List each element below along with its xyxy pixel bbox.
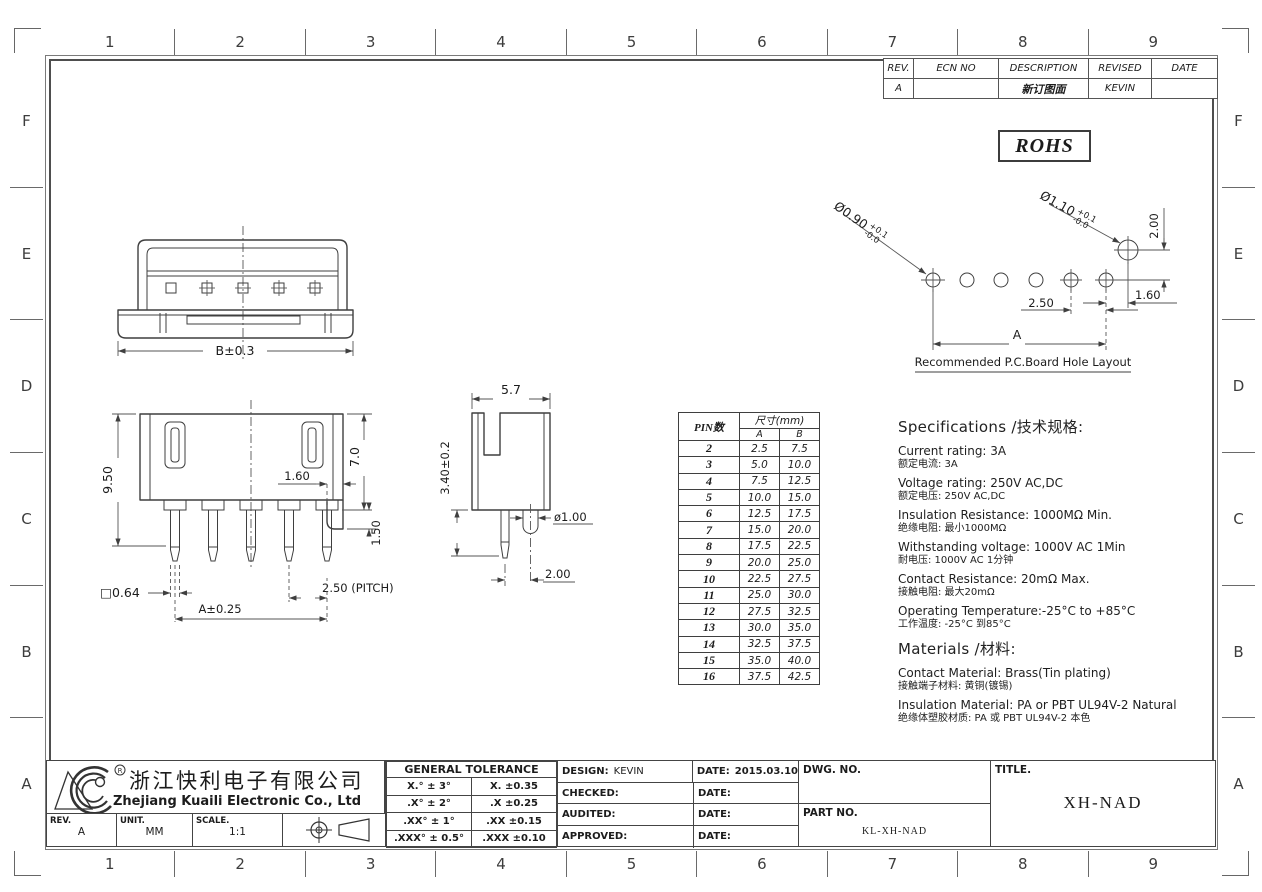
signoff-row: DESIGN: KEVIN DATE: 2015.03.10 [558, 761, 798, 783]
pin-table-row: 10 22.5 27.5 [679, 571, 820, 587]
revision-row: A 新订图面 KEVIN [884, 79, 1218, 99]
scale-cell: SCALE. 1:1 [192, 813, 283, 847]
tolerance-row: X.° ± 3° X. ±0.35 [387, 778, 557, 796]
revision-header-cell: ECN NO [914, 59, 999, 79]
dim-b-cell: 30.0 [780, 587, 820, 603]
company-box: R 浙江快利电子有限公司 Zhejiang Kuaili Electronic … [46, 760, 385, 814]
tolerance-linear-cell: X. ±0.35 [472, 778, 557, 796]
pin-table-row: 12 27.5 32.5 [679, 603, 820, 619]
dim-b-cell: 25.0 [780, 555, 820, 571]
top-view-drawing: B±0.3 [95, 222, 390, 362]
top-view-pins [166, 280, 323, 296]
tolerance-linear-cell: .XXX ±0.10 [472, 830, 557, 848]
grid-column-label: 7 [828, 851, 958, 877]
grid-column-label: 3 [306, 29, 436, 55]
rev-label: REV. [50, 816, 71, 826]
pin-count-cell: 16 [679, 669, 740, 685]
pin-count-cell: 6 [679, 506, 740, 522]
spec-text-en: Contact Resistance: 20mΩ Max. [898, 572, 1220, 587]
grid-column-label: 4 [436, 851, 566, 877]
tolerance-box: GENERAL TOLERANCE X.° ± 3° X. ±0.35 .X° … [385, 760, 558, 847]
grid-row-label: F [1222, 55, 1255, 188]
unit-cell: UNIT. MM [116, 813, 193, 847]
pin-table-header-pins: PIN数 [679, 413, 740, 441]
unit-label: UNIT. [120, 816, 145, 826]
grid-column-label: 4 [436, 29, 566, 55]
pin-count-cell: 13 [679, 620, 740, 636]
signoff-label: DESIGN: [562, 766, 609, 777]
grid-column-label: 9 [1089, 29, 1218, 55]
dim-b-cell: 15.0 [780, 489, 820, 505]
materials-section: Materials /材料: Contact Material: Brass(T… [898, 638, 1220, 730]
revision-header-row: REV.ECN NODESCRIPTIONREVISEDDATE [884, 59, 1218, 79]
dim-b-cell: 17.5 [780, 506, 820, 522]
dim-label-70: 7.0 [347, 447, 362, 467]
grid-row-label: D [1222, 320, 1255, 453]
spec-text-en: Voltage rating: 250V AC,DC [898, 476, 1220, 491]
company-name-en: Zhejiang Kuaili Electronic Co., Ltd [113, 794, 361, 809]
grid-column-label: 1 [45, 851, 175, 877]
dim-b-cell: 20.0 [780, 522, 820, 538]
grid-column-label: 5 [567, 851, 697, 877]
spec-text-en: Insulation Resistance: 1000MΩ Min. [898, 508, 1220, 523]
dim-a-cell: 10.0 [740, 489, 780, 505]
dim-a-cell: 15.0 [740, 522, 780, 538]
revision-ecn [914, 79, 999, 99]
dim-a-cell: 5.0 [740, 457, 780, 473]
dim-a-cell: 30.0 [740, 620, 780, 636]
grid-column-label: 8 [958, 29, 1088, 55]
pin-table-row: 16 37.5 42.5 [679, 669, 820, 685]
dim-b-cell: 10.0 [780, 457, 820, 473]
row-ruler-left: FEDCBA [10, 55, 43, 850]
corner-mark [14, 28, 41, 53]
signoff-row: CHECKED: DATE: [558, 783, 798, 805]
dim-a-cell: 35.0 [740, 652, 780, 668]
pin-table-row: 2 2.5 7.5 [679, 441, 820, 457]
pin-count-cell: 3 [679, 457, 740, 473]
grid-row-label: A [1222, 718, 1255, 850]
leader-label-big-hole: Ø1.10 [1038, 188, 1078, 219]
specifications-section: Specifications /技术规格: Current rating: 3A… [898, 416, 1220, 636]
dim-label-150: 1.50 [369, 520, 383, 546]
pin-count-cell: 2 [679, 441, 740, 457]
dim-label-span-a: A [1013, 327, 1022, 342]
grid-column-label: 6 [697, 29, 827, 55]
pin-count-cell: 8 [679, 538, 740, 554]
rohs-badge: ROHS [998, 130, 1091, 162]
dim-b-cell: 35.0 [780, 620, 820, 636]
grid-column-label: 5 [567, 29, 697, 55]
material-text-en: Contact Material: Brass(Tin plating) [898, 666, 1220, 681]
spec-text-zh: 绝缘电阻: 最小1000MΩ [898, 523, 1220, 535]
pin-count-table: PIN数 尺寸(mm) A B 2 2.5 7.5 3 5.0 10.0 [678, 412, 820, 685]
specification-item: Withstanding voltage: 1000V AC 1Min 耐电压:… [898, 540, 1220, 567]
projection-symbol-icon [283, 814, 385, 846]
dim-label-064: □0.64 [100, 585, 140, 600]
part-no-box: PART NO. KL-XH-NAD [798, 803, 991, 847]
pin-table-header-b: B [780, 429, 820, 441]
revision-header-cell: REV. [884, 59, 914, 79]
specification-item: Contact Resistance: 20mΩ Max. 接触电阻: 最大20… [898, 572, 1220, 599]
dim-a-cell: 20.0 [740, 555, 780, 571]
drawing-sheet: 123456789 123456789 FEDCBA FEDCBA REV.EC… [0, 0, 1262, 892]
pin-table-row: 3 5.0 10.0 [679, 457, 820, 473]
pin-count-cell: 11 [679, 587, 740, 603]
side-view-dims: 5.7 3.40±0.2 ø1.00 2.00 [438, 382, 593, 582]
dim-b-cell: 40.0 [780, 652, 820, 668]
spec-text-zh: 工作温度: -25°C 到85°C [898, 619, 1220, 631]
spec-text-en: Current rating: 3A [898, 444, 1220, 459]
corner-mark [14, 851, 41, 876]
pin-table-row: 11 25.0 30.0 [679, 587, 820, 603]
pin-table-row: 13 30.0 35.0 [679, 620, 820, 636]
signoff-label: CHECKED: [562, 788, 619, 799]
dim-b-cell: 32.5 [780, 603, 820, 619]
dwg-no-box: DWG. NO. [798, 760, 991, 804]
grid-column-label: 2 [175, 29, 305, 55]
pcb-caption: Recommended P.C.Board Hole Layout [915, 355, 1132, 372]
dim-a-cell: 22.5 [740, 571, 780, 587]
tolerance-row: .XX° ± 1° .XX ±0.15 [387, 813, 557, 831]
grid-column-label: 6 [697, 851, 827, 877]
pin-table-row: 4 7.5 12.5 [679, 473, 820, 489]
signoff-box: DESIGN: KEVIN DATE: 2015.03.10 CHECKED: … [557, 760, 799, 847]
material-item: Contact Material: Brass(Tin plating) 接触端… [898, 666, 1220, 693]
pin-count-cell: 12 [679, 603, 740, 619]
dim-label-57: 5.7 [501, 382, 521, 397]
company-name-zh: 浙江快利电子有限公司 [129, 765, 364, 795]
dim-b-cell: 12.5 [780, 473, 820, 489]
side-view-drawing: 5.7 3.40±0.2 ø1.00 2.00 [423, 378, 618, 593]
tolerance-angle-cell: X.° ± 3° [387, 778, 472, 796]
side-view-outline [472, 413, 550, 586]
spec-text-en: Operating Temperature:-25°C to +85°C [898, 604, 1220, 619]
dim-a-cell: 32.5 [740, 636, 780, 652]
top-view-dim-b: B±0.3 [118, 341, 353, 358]
tolerance-angle-cell: .XXX° ± 0.5° [387, 830, 472, 848]
revision-revised-by: KEVIN [1089, 79, 1152, 99]
tolerance-angle-cell: .X° ± 2° [387, 795, 472, 813]
grid-column-label: 7 [828, 29, 958, 55]
dim-label-160: 1.60 [1135, 288, 1161, 302]
grid-row-label: A [10, 718, 43, 850]
signoff-date-label: DATE: [698, 809, 731, 820]
specification-item: Insulation Resistance: 1000MΩ Min. 绝缘电阻:… [898, 508, 1220, 535]
material-text-zh: 接触端子材料: 黄铜(镀锡) [898, 681, 1220, 693]
pcb-leader-small-hole: Ø0.90 +0.1 -0.0 [829, 198, 926, 274]
grid-column-label: 9 [1089, 851, 1218, 877]
grid-row-label: C [1222, 453, 1255, 586]
dim-a-cell: 2.5 [740, 441, 780, 457]
material-text-en: Insulation Material: PA or PBT UL94V-2 N… [898, 698, 1220, 713]
pin-table-header-size: 尺寸(mm) [740, 413, 820, 429]
spec-text-zh: 接触电阻: 最大20mΩ [898, 587, 1220, 599]
pin-count-cell: 10 [679, 571, 740, 587]
revision-table: REV.ECN NODESCRIPTIONREVISEDDATE A 新订图面 … [883, 58, 1218, 99]
spec-text-zh: 额定电压: 250V AC,DC [898, 491, 1220, 503]
materials-title: Materials /材料: [898, 638, 1220, 659]
column-ruler-top: 123456789 [45, 29, 1218, 55]
unit-value: MM [117, 826, 192, 838]
dim-b-cell: 37.5 [780, 636, 820, 652]
part-no-value: KL-XH-NAD [799, 826, 990, 837]
specification-item: Voltage rating: 250V AC,DC 额定电压: 250V AC… [898, 476, 1220, 503]
pin-table-row: 9 20.0 25.0 [679, 555, 820, 571]
dim-label-200: 2.00 [545, 567, 571, 581]
tolerance-angle-cell: .XX° ± 1° [387, 813, 472, 831]
spec-text-zh: 额定电流: 3A [898, 459, 1220, 471]
specification-item: Operating Temperature:-25°C to +85°C 工作温… [898, 604, 1220, 631]
pin-table-row: 14 32.5 37.5 [679, 636, 820, 652]
revision-header-cell: DESCRIPTION [999, 59, 1089, 79]
dwg-no-label: DWG. NO. [803, 764, 861, 776]
grid-row-label: B [10, 586, 43, 719]
grid-row-label: F [10, 55, 43, 188]
signoff-row: AUDITED: DATE: [558, 804, 798, 826]
pin-count-cell: 7 [679, 522, 740, 538]
dim-label-b: B±0.3 [216, 343, 255, 358]
pcb-leader-big-hole: Ø1.10 +0.1 -0.0 [1036, 188, 1120, 243]
corner-mark [1222, 28, 1249, 53]
row-ruler-right: FEDCBA [1222, 55, 1255, 850]
tolerance-linear-cell: .XX ±0.15 [472, 813, 557, 831]
dim-label-340: 3.40±0.2 [438, 441, 452, 495]
dim-a-cell: 37.5 [740, 669, 780, 685]
front-view-drawing: 9.50 7.0 1.50 1.60 □0.64 2.50 (PITCH) A±… [88, 398, 418, 628]
pin-count-cell: 9 [679, 555, 740, 571]
revision-header-cell: REVISED [1089, 59, 1152, 79]
tolerance-title: GENERAL TOLERANCE [387, 762, 557, 778]
signoff-value: KEVIN [614, 766, 644, 777]
dim-label-250: 2.50 [1028, 296, 1054, 310]
pcb-dims: 2.00 1.60 2.50 A [933, 208, 1177, 350]
signoff-date-value: 2015.03.10 [735, 766, 798, 777]
pin-table-row: 8 17.5 22.5 [679, 538, 820, 554]
pin-table-row: 15 35.0 40.0 [679, 652, 820, 668]
revision-date [1152, 79, 1218, 99]
grid-row-label: D [10, 320, 43, 453]
signoff-row: APPROVED: DATE: [558, 826, 798, 848]
grid-row-label: C [10, 453, 43, 586]
signoff-label: APPROVED: [562, 831, 627, 842]
specification-item: Current rating: 3A 额定电流: 3A [898, 444, 1220, 471]
signoff-label: AUDITED: [562, 809, 616, 820]
spec-text-en: Withstanding voltage: 1000V AC 1Min [898, 540, 1220, 555]
dim-b-cell: 42.5 [780, 669, 820, 685]
dim-a-cell: 7.5 [740, 473, 780, 489]
title-label: TITLE. [995, 764, 1031, 776]
revision-description: 新订图面 [999, 79, 1089, 99]
rev-value: A [47, 826, 116, 838]
dim-b-cell: 22.5 [780, 538, 820, 554]
material-item: Insulation Material: PA or PBT UL94V-2 N… [898, 698, 1220, 725]
scale-label: SCALE. [196, 816, 229, 826]
drawing-title: XH-NAD [991, 793, 1215, 813]
svg-text:R: R [118, 767, 123, 775]
dim-label-span: A±0.25 [198, 602, 241, 616]
tolerance-row: .XXX° ± 0.5° .XXX ±0.10 [387, 830, 557, 848]
grid-row-label: B [1222, 586, 1255, 719]
pcb-holes [921, 236, 1170, 292]
dim-b-cell: 7.5 [780, 441, 820, 457]
title-box: TITLE. XH-NAD [990, 760, 1216, 847]
grid-column-label: 2 [175, 851, 305, 877]
corner-mark [1222, 851, 1249, 876]
pin-table-header-a: A [740, 429, 780, 441]
signoff-date-label: DATE: [698, 788, 731, 799]
pin-table-row: 7 15.0 20.0 [679, 522, 820, 538]
pin-count-cell: 14 [679, 636, 740, 652]
grid-column-label: 3 [306, 851, 436, 877]
signoff-date-label: DATE: [698, 831, 731, 842]
tolerance-row: .X° ± 2° .X ±0.25 [387, 795, 557, 813]
scale-value: 1:1 [193, 826, 282, 838]
dim-a-cell: 25.0 [740, 587, 780, 603]
dim-label-160: 1.60 [284, 469, 310, 483]
rev-cell: REV. A [46, 813, 117, 847]
specifications-title: Specifications /技术规格: [898, 416, 1220, 437]
dim-label-200: 2.00 [1147, 213, 1161, 239]
grid-column-label: 8 [958, 851, 1088, 877]
pin-count-cell: 15 [679, 652, 740, 668]
material-text-zh: 绝缘体塑胶材质: PA 或 PBT UL94V-2 本色 [898, 713, 1220, 725]
signoff-date-label: DATE: [697, 766, 730, 777]
pin-count-cell: 5 [679, 489, 740, 505]
column-ruler-bottom: 123456789 [45, 851, 1218, 877]
grid-column-label: 1 [45, 29, 175, 55]
pcb-hole-layout-drawing: Ø0.90 +0.1 -0.0 Ø1.10 +0.1 -0.0 2.00 1.6… [825, 178, 1222, 378]
grid-row-label: E [10, 188, 43, 321]
projection-cell [282, 813, 386, 847]
spec-text-zh: 耐电压: 1000V AC 1分钟 [898, 555, 1220, 567]
dim-a-cell: 27.5 [740, 603, 780, 619]
grid-row-label: E [1222, 188, 1255, 321]
pin-table-row: 6 12.5 17.5 [679, 506, 820, 522]
dim-a-cell: 17.5 [740, 538, 780, 554]
pin-table-row: 5 10.0 15.0 [679, 489, 820, 505]
revision-rev: A [884, 79, 914, 99]
pin-count-cell: 4 [679, 473, 740, 489]
pcb-layout-caption: Recommended P.C.Board Hole Layout [915, 355, 1132, 369]
revision-header-cell: DATE [1152, 59, 1218, 79]
dim-a-cell: 12.5 [740, 506, 780, 522]
part-no-label: PART NO. [803, 807, 858, 819]
leader-label-small-hole: Ø0.90 [831, 198, 871, 232]
dim-b-cell: 27.5 [780, 571, 820, 587]
dim-label-950: 9.50 [100, 466, 115, 494]
dim-label-100: ø1.00 [554, 510, 587, 524]
dim-label-pitch: 2.50 (PITCH) [322, 581, 394, 595]
tolerance-linear-cell: .X ±0.25 [472, 795, 557, 813]
